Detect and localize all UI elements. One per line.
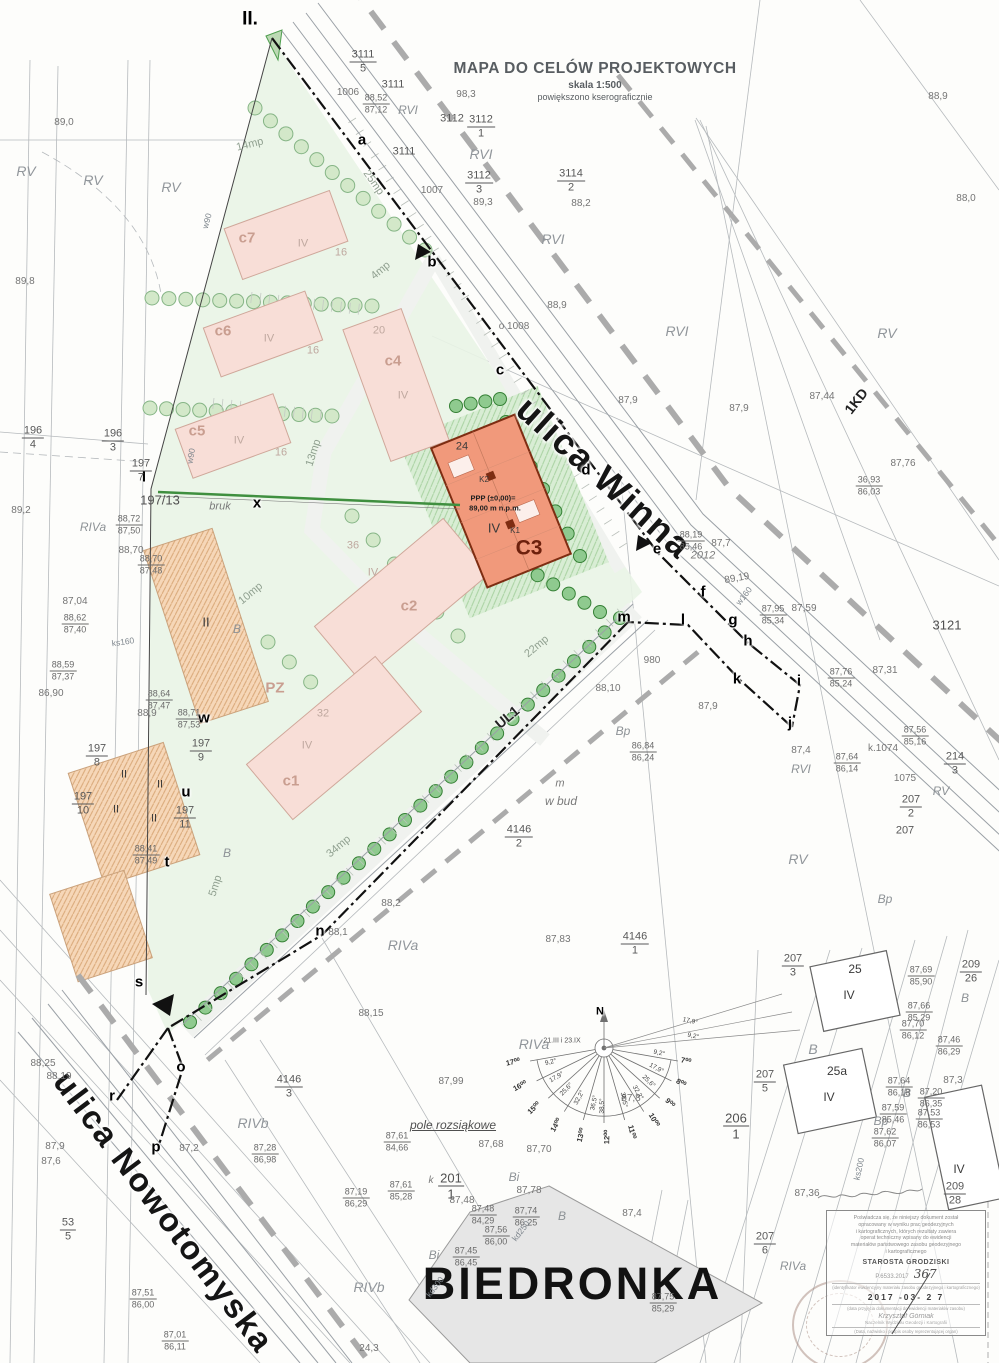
certification-stamp: Poświadcza się, że niniejszy dokument zo… <box>826 1210 986 1336</box>
stamp-signature-role: Naczelnik Wydziału Geodezji i Kartografi… <box>832 1320 980 1325</box>
title-block: MAPA DO CELÓW PROJEKTOWYCH skala 1:500 p… <box>445 60 745 102</box>
neighbor-buildings <box>784 951 999 1210</box>
store-label-biedronka: BIEDRONKA <box>400 1258 745 1310</box>
stamp-authority: STAROSTA GRODZISKI <box>832 1259 980 1266</box>
stamp-cert-text: Poświadcza się, że niniejszy dokument zo… <box>832 1215 980 1256</box>
sun-diagram <box>530 994 800 1123</box>
stamp-signature: Krzysztof Górniak <box>832 1313 980 1320</box>
stamp-caption-sign: (Data, nazwisko i podpis osoby reprezent… <box>832 1327 980 1334</box>
stamp-date: 2017 -03- 2 7 <box>832 1292 980 1302</box>
map-scale: skala 1:500 <box>445 80 745 91</box>
road-nowotomyska <box>18 990 352 1363</box>
stamp-doc-number: P.6533.2017 367 <box>832 1267 980 1281</box>
road-1kd-dashed <box>618 75 999 545</box>
map-title: MAPA DO CELÓW PROJEKTOWYCH <box>445 60 745 78</box>
stamp-caption-id: (identyfikator ewidencyjny materiału zas… <box>832 1283 980 1290</box>
map-page: II.31115311188,5287,12RVI1006311198,3311… <box>0 0 999 1363</box>
map-linework <box>0 0 999 1363</box>
handwritten-note <box>818 1189 922 1198</box>
map-note: powiększono kserograficznie <box>445 92 745 102</box>
